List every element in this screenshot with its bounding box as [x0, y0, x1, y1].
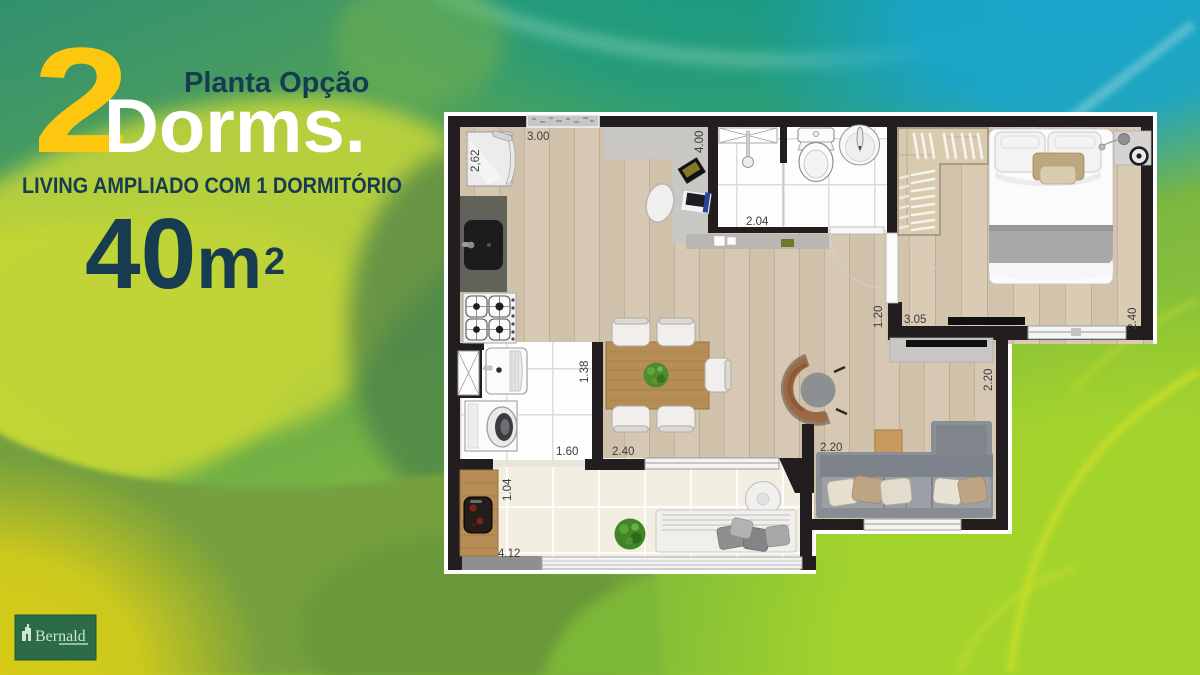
svg-text:3.00: 3.00	[527, 131, 549, 143]
svg-text:3.05: 3.05	[904, 314, 926, 326]
svg-text:2.20: 2.20	[820, 442, 842, 454]
svg-text:Bernald: Bernald	[35, 628, 86, 645]
svg-text:1.38: 1.38	[579, 361, 591, 383]
svg-text:1.04: 1.04	[502, 478, 514, 501]
svg-text:2.40: 2.40	[612, 446, 634, 458]
svg-text:4.00: 4.00	[694, 131, 706, 153]
svg-text:1.20: 1.20	[873, 306, 885, 328]
svg-text:1.60: 1.60	[556, 446, 578, 458]
svg-text:2.04: 2.04	[746, 216, 769, 228]
svg-text:2.40: 2.40	[1127, 308, 1139, 330]
svg-text:4.12: 4.12	[498, 548, 520, 560]
svg-text:LIVING AMPLIADO COM 1 DORMITÓR: LIVING AMPLIADO COM 1 DORMITÓRIO	[22, 173, 402, 198]
svg-text:Planta Opção: Planta Opção	[184, 67, 369, 99]
svg-text:2,62: 2,62	[470, 150, 482, 172]
svg-text:2.20: 2.20	[983, 369, 995, 391]
